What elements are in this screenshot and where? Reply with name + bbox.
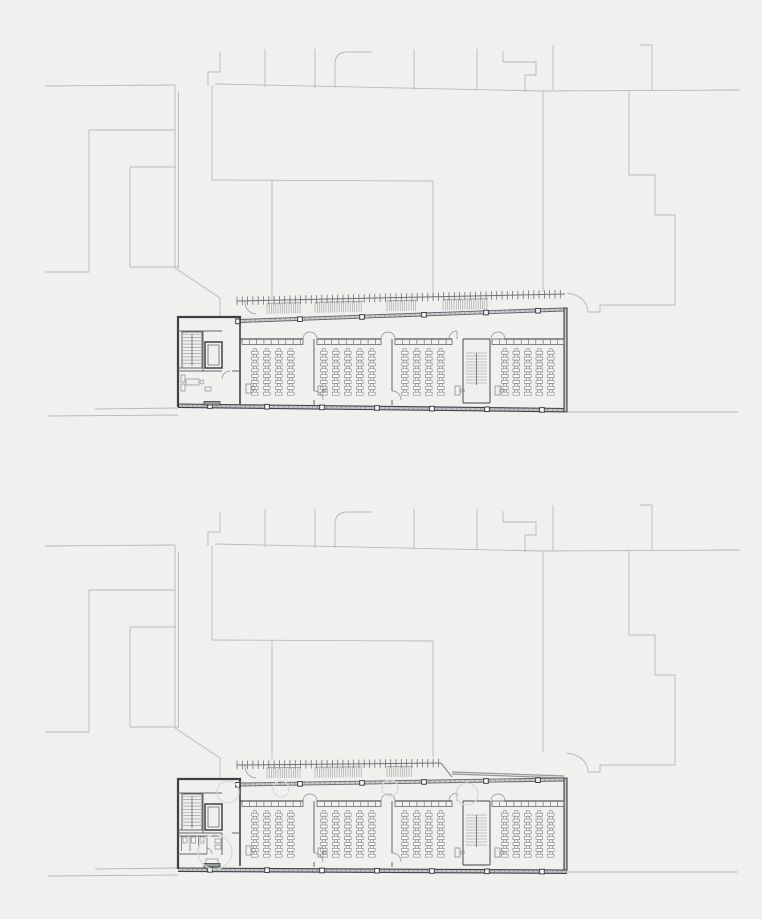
facade-post xyxy=(430,406,435,411)
facade-post xyxy=(540,869,545,874)
cabinet-rows xyxy=(242,339,564,345)
cabinet-rows xyxy=(242,801,564,807)
architectural-site-plan-canvas xyxy=(0,0,762,919)
school-building xyxy=(178,759,567,874)
facade-post xyxy=(536,308,541,313)
teacher-desk xyxy=(495,386,500,395)
upper-floor-plan xyxy=(45,45,740,416)
classroom-4-desks xyxy=(502,810,555,857)
facade-post xyxy=(360,315,365,320)
classroom-2-desks xyxy=(321,810,376,857)
facade-post xyxy=(298,317,303,322)
facade-post xyxy=(298,782,303,787)
teacher-desk xyxy=(246,384,251,393)
classroom-3-desks xyxy=(402,348,445,395)
south-window-band xyxy=(178,404,567,412)
stair-core-east xyxy=(466,815,487,847)
classroom-1-desks xyxy=(252,348,295,395)
sanitary-fixture xyxy=(192,837,196,843)
south-window-band xyxy=(178,868,567,874)
classroom-furniture xyxy=(246,348,554,395)
classroom-3-desks xyxy=(402,810,445,857)
classroom-4-desks xyxy=(502,348,555,395)
west-block-room xyxy=(181,371,230,391)
facade-post xyxy=(484,779,489,784)
school-building xyxy=(178,290,567,412)
east-wall xyxy=(564,778,567,870)
tree-outline xyxy=(217,781,239,803)
facade-post xyxy=(536,778,541,783)
teacher-desk xyxy=(455,386,460,395)
sanitary-fixture xyxy=(215,839,221,843)
classroom-furniture xyxy=(246,810,554,857)
classroom-2-desks xyxy=(321,348,376,395)
drawing-page xyxy=(0,0,762,919)
facade-post xyxy=(540,408,545,413)
ground-floor-plan xyxy=(45,505,740,876)
tree-outline xyxy=(456,783,478,805)
stair-core-east xyxy=(466,353,487,385)
facade-post xyxy=(422,312,427,317)
east-wall xyxy=(564,308,567,412)
facade-post xyxy=(485,407,490,412)
classroom-1-desks xyxy=(252,810,295,857)
teacher-desk xyxy=(495,848,500,857)
stair-core-west xyxy=(183,335,201,367)
facade-post xyxy=(265,868,270,873)
sanitary-fixture xyxy=(183,837,187,843)
facade-post xyxy=(265,404,270,409)
facade-post xyxy=(422,780,427,785)
bike-racks xyxy=(267,766,413,778)
teacher-desk xyxy=(455,848,460,857)
facade-post xyxy=(484,310,489,315)
entrance-threshold xyxy=(204,402,220,406)
teacher-desk xyxy=(246,846,251,855)
entrance-canopy xyxy=(237,759,564,778)
north-glazed-facade xyxy=(236,308,564,324)
sanitary-fixture xyxy=(215,845,221,849)
facade-post xyxy=(485,869,490,874)
facade-post xyxy=(430,869,435,874)
facade-post xyxy=(375,406,380,411)
facade-post xyxy=(320,868,325,873)
stair-core-west xyxy=(183,797,201,829)
facade-post xyxy=(320,405,325,410)
facade-post xyxy=(360,781,365,786)
facade-post xyxy=(375,868,380,873)
